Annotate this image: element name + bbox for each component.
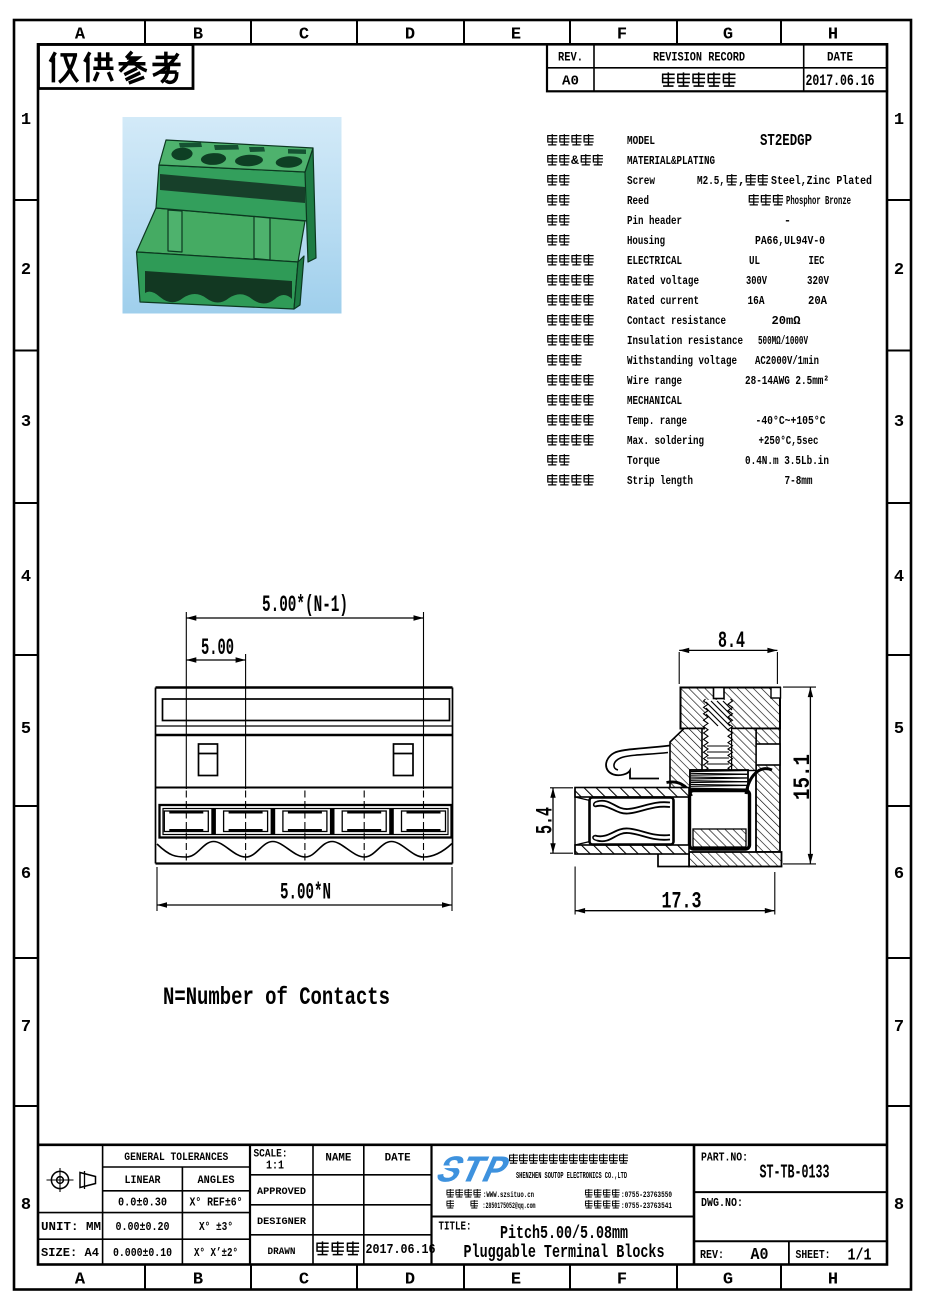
- svg-text:Contact resistance: Contact resistance: [627, 314, 726, 328]
- svg-text:8.4: 8.4: [718, 628, 745, 654]
- svg-text:2: 2: [21, 261, 31, 280]
- svg-text:X° X’±2°: X° X’±2°: [194, 1247, 238, 1260]
- svg-text:6: 6: [894, 865, 904, 884]
- svg-text:5.00: 5.00: [201, 635, 234, 661]
- svg-text:500MΩ/1000V: 500MΩ/1000V: [758, 334, 809, 348]
- svg-text:5: 5: [894, 720, 904, 739]
- svg-text:1/1: 1/1: [848, 1247, 872, 1266]
- svg-text:5.4: 5.4: [533, 807, 559, 834]
- svg-text:MATERIAL&PLATING: MATERIAL&PLATING: [627, 154, 715, 168]
- svg-text:X° REF±6°: X° REF±6°: [190, 1197, 243, 1210]
- svg-text:Rated voltage: Rated voltage: [627, 274, 699, 288]
- svg-text:4: 4: [21, 568, 31, 587]
- svg-text:0.4N.m 3.5Lb.in: 0.4N.m 3.5Lb.in: [745, 454, 829, 468]
- svg-text:REV.: REV.: [558, 51, 583, 65]
- svg-text:D: D: [405, 26, 415, 45]
- svg-text:DATE: DATE: [827, 51, 853, 65]
- svg-text:G: G: [723, 26, 733, 45]
- svg-text:Pluggable Terminal Blocks: Pluggable Terminal Blocks: [464, 1243, 665, 1263]
- svg-text:20mΩ: 20mΩ: [772, 314, 801, 328]
- svg-text:Insulation resistance: Insulation resistance: [627, 334, 743, 348]
- svg-text:A: A: [75, 26, 86, 45]
- svg-text:17.3: 17.3: [662, 889, 702, 915]
- svg-text:3: 3: [21, 413, 31, 432]
- svg-text:IEC: IEC: [809, 254, 825, 268]
- svg-text:PA66,UL94V-0: PA66,UL94V-0: [755, 234, 825, 248]
- svg-text:Phosphor Bronze: Phosphor Bronze: [786, 194, 851, 208]
- svg-text::0755-23763550: :0755-23763550: [621, 1190, 672, 1200]
- svg-text:ST2EDGP: ST2EDGP: [760, 131, 812, 150]
- svg-text:300V: 300V: [746, 274, 768, 288]
- svg-text:M2.5,: M2.5,: [697, 174, 725, 188]
- svg-text:&: &: [571, 153, 579, 168]
- svg-text::0755-23763541: :0755-23763541: [621, 1201, 672, 1211]
- svg-text:PART.NO:: PART.NO:: [701, 1151, 748, 1165]
- svg-text:H: H: [828, 26, 838, 45]
- svg-text:2017.06.16: 2017.06.16: [806, 72, 875, 90]
- svg-text:28-14AWG 2.5mm²: 28-14AWG 2.5mm²: [745, 374, 829, 388]
- svg-text:UNIT: MM: UNIT: MM: [41, 1221, 101, 1234]
- svg-text:UL: UL: [749, 254, 760, 268]
- svg-text:G: G: [723, 1271, 733, 1290]
- svg-text:7: 7: [21, 1018, 31, 1037]
- svg-text:4: 4: [894, 568, 904, 587]
- svg-text:E: E: [511, 1271, 521, 1290]
- svg-text:Rated current: Rated current: [627, 294, 699, 308]
- svg-text:REV:: REV:: [700, 1248, 724, 1262]
- svg-text:8: 8: [894, 1196, 904, 1215]
- svg-text:E: E: [511, 26, 521, 45]
- svg-text::WWW.szsituo.cn: :WWW.szsituo.cn: [483, 1190, 534, 1200]
- svg-text:ANGLES: ANGLES: [198, 1175, 235, 1187]
- svg-text:A0: A0: [751, 1246, 769, 1265]
- svg-text:X° ±3°: X° ±3°: [199, 1221, 233, 1234]
- svg-text:F: F: [617, 1271, 627, 1290]
- svg-text:ST-TB-0133: ST-TB-0133: [760, 1162, 830, 1184]
- svg-text:8: 8: [21, 1196, 31, 1215]
- svg-text:LINEAR: LINEAR: [125, 1175, 161, 1187]
- svg-text:6: 6: [21, 865, 31, 884]
- svg-text:-: -: [784, 214, 791, 228]
- svg-text:Reed: Reed: [627, 194, 649, 208]
- svg-text:C: C: [299, 1271, 309, 1290]
- svg-text:16A: 16A: [748, 294, 766, 308]
- svg-text:7: 7: [894, 1018, 904, 1037]
- svg-text:Max. soldering: Max. soldering: [627, 434, 704, 448]
- svg-text:0.0±0.30: 0.0±0.30: [118, 1197, 167, 1210]
- svg-text:7-8mm: 7-8mm: [785, 474, 813, 488]
- svg-text:DESIGNER: DESIGNER: [257, 1216, 307, 1228]
- svg-text:NAME: NAME: [325, 1153, 351, 1165]
- svg-text:2017.06.16: 2017.06.16: [366, 1243, 436, 1258]
- svg-text:SIZE: A4: SIZE: A4: [41, 1247, 99, 1260]
- svg-text:1: 1: [894, 111, 904, 130]
- svg-text:Temp. range: Temp. range: [627, 414, 687, 428]
- svg-text::2850175052@qq.com: :2850175052@qq.com: [483, 1201, 536, 1211]
- svg-text:320V: 320V: [807, 274, 830, 288]
- svg-text:-40°C~+105°C: -40°C~+105°C: [756, 414, 826, 428]
- svg-text:B: B: [193, 1271, 203, 1290]
- svg-text:Pin header: Pin header: [627, 214, 682, 228]
- svg-text:1:1: 1:1: [266, 1159, 284, 1173]
- svg-text:Strip length: Strip length: [627, 474, 693, 488]
- svg-text:DATE: DATE: [385, 1153, 411, 1165]
- svg-text:,: ,: [738, 174, 745, 188]
- svg-text:15.1: 15.1: [790, 754, 816, 800]
- svg-text:+250°C,5sec: +250°C,5sec: [759, 434, 819, 448]
- svg-text:5.00*N: 5.00*N: [280, 880, 331, 906]
- svg-text:2: 2: [894, 261, 904, 280]
- svg-text:DRAWN: DRAWN: [268, 1246, 296, 1258]
- svg-text:MODEL: MODEL: [627, 134, 655, 148]
- svg-text:Wire range: Wire range: [627, 374, 682, 388]
- svg-text:AC2000V/1min: AC2000V/1min: [755, 354, 819, 368]
- svg-text:STP: STP: [433, 1150, 513, 1193]
- svg-text:20A: 20A: [808, 294, 828, 308]
- svg-text:SHEET:: SHEET:: [796, 1248, 831, 1262]
- svg-text:C: C: [299, 26, 309, 45]
- svg-text:DWG.NO:: DWG.NO:: [701, 1196, 743, 1210]
- svg-text:Housing: Housing: [627, 234, 665, 248]
- svg-text:H: H: [828, 1271, 838, 1290]
- svg-text:APPROVED: APPROVED: [257, 1186, 306, 1198]
- svg-text:Torque: Torque: [627, 454, 660, 468]
- svg-text:0.00±0.20: 0.00±0.20: [116, 1221, 170, 1234]
- svg-text:1: 1: [21, 111, 31, 130]
- svg-text:F: F: [617, 26, 627, 45]
- svg-text:5.00*(N-1): 5.00*(N-1): [262, 592, 348, 618]
- svg-text:Withstanding voltage: Withstanding voltage: [627, 354, 737, 368]
- svg-text:3: 3: [894, 413, 904, 432]
- svg-text:B: B: [193, 26, 203, 45]
- svg-text:A0: A0: [562, 74, 579, 90]
- svg-text:Steel,Zinc Plated: Steel,Zinc Plated: [771, 174, 872, 188]
- svg-text:MECHANICAL: MECHANICAL: [627, 394, 682, 408]
- svg-text:TITLE:: TITLE:: [439, 1221, 472, 1234]
- svg-text:0.000±0.10: 0.000±0.10: [113, 1247, 172, 1260]
- svg-text:Pitch5.00/5.08mm: Pitch5.00/5.08mm: [500, 1224, 628, 1244]
- svg-text:5: 5: [21, 720, 31, 739]
- svg-text:REVISION RECORD: REVISION RECORD: [653, 51, 745, 65]
- svg-text:ELECTRICAL: ELECTRICAL: [627, 254, 682, 268]
- svg-text:A: A: [75, 1271, 86, 1290]
- svg-text:D: D: [405, 1271, 415, 1290]
- svg-text:N=Number of Contacts: N=Number of Contacts: [163, 983, 390, 1012]
- svg-text:GENERAL TOLERANCES: GENERAL TOLERANCES: [124, 1152, 228, 1164]
- svg-text:SHENZHEN SOUTOP ELECTRONICS CO: SHENZHEN SOUTOP ELECTRONICS CO.,LTD: [516, 1171, 627, 1181]
- svg-text:Screw: Screw: [627, 174, 656, 188]
